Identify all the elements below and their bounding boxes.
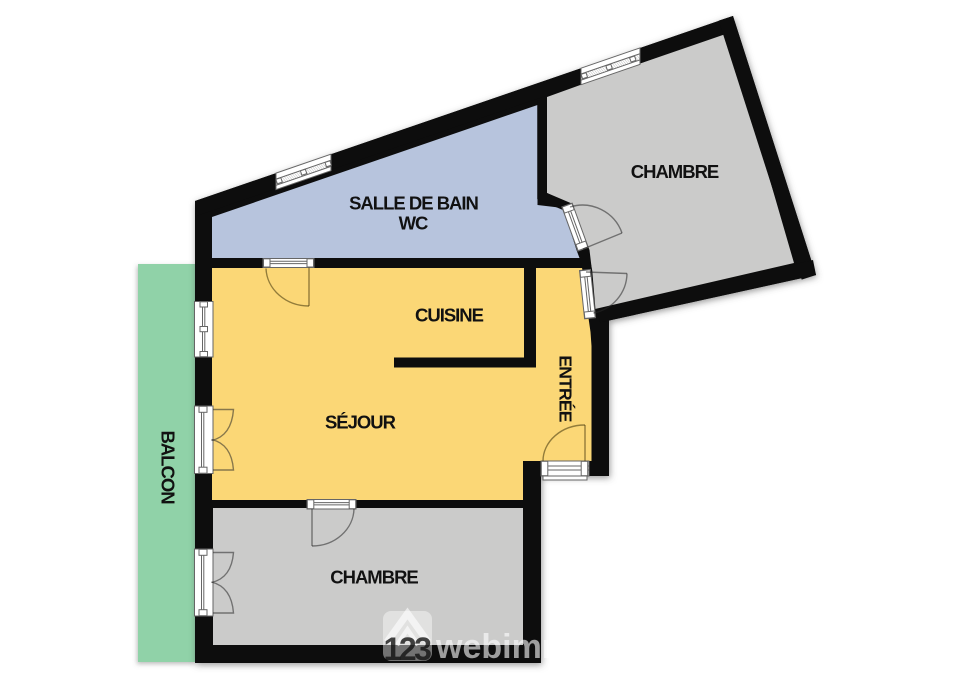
- svg-text:123: 123: [384, 631, 432, 667]
- svg-text:SÉJOUR: SÉJOUR: [325, 412, 396, 433]
- svg-text:webimmo: webimmo: [435, 628, 593, 666]
- svg-text:SALLE DE BAIN: SALLE DE BAIN: [349, 193, 478, 214]
- svg-text:CHAMBRE: CHAMBRE: [631, 161, 719, 182]
- svg-text:CHAMBRE: CHAMBRE: [330, 567, 418, 588]
- svg-text:CUISINE: CUISINE: [415, 305, 484, 326]
- svg-text:WC: WC: [399, 213, 428, 234]
- svg-text:BALCON: BALCON: [158, 430, 179, 504]
- svg-text:ENTRÉE: ENTRÉE: [556, 355, 577, 421]
